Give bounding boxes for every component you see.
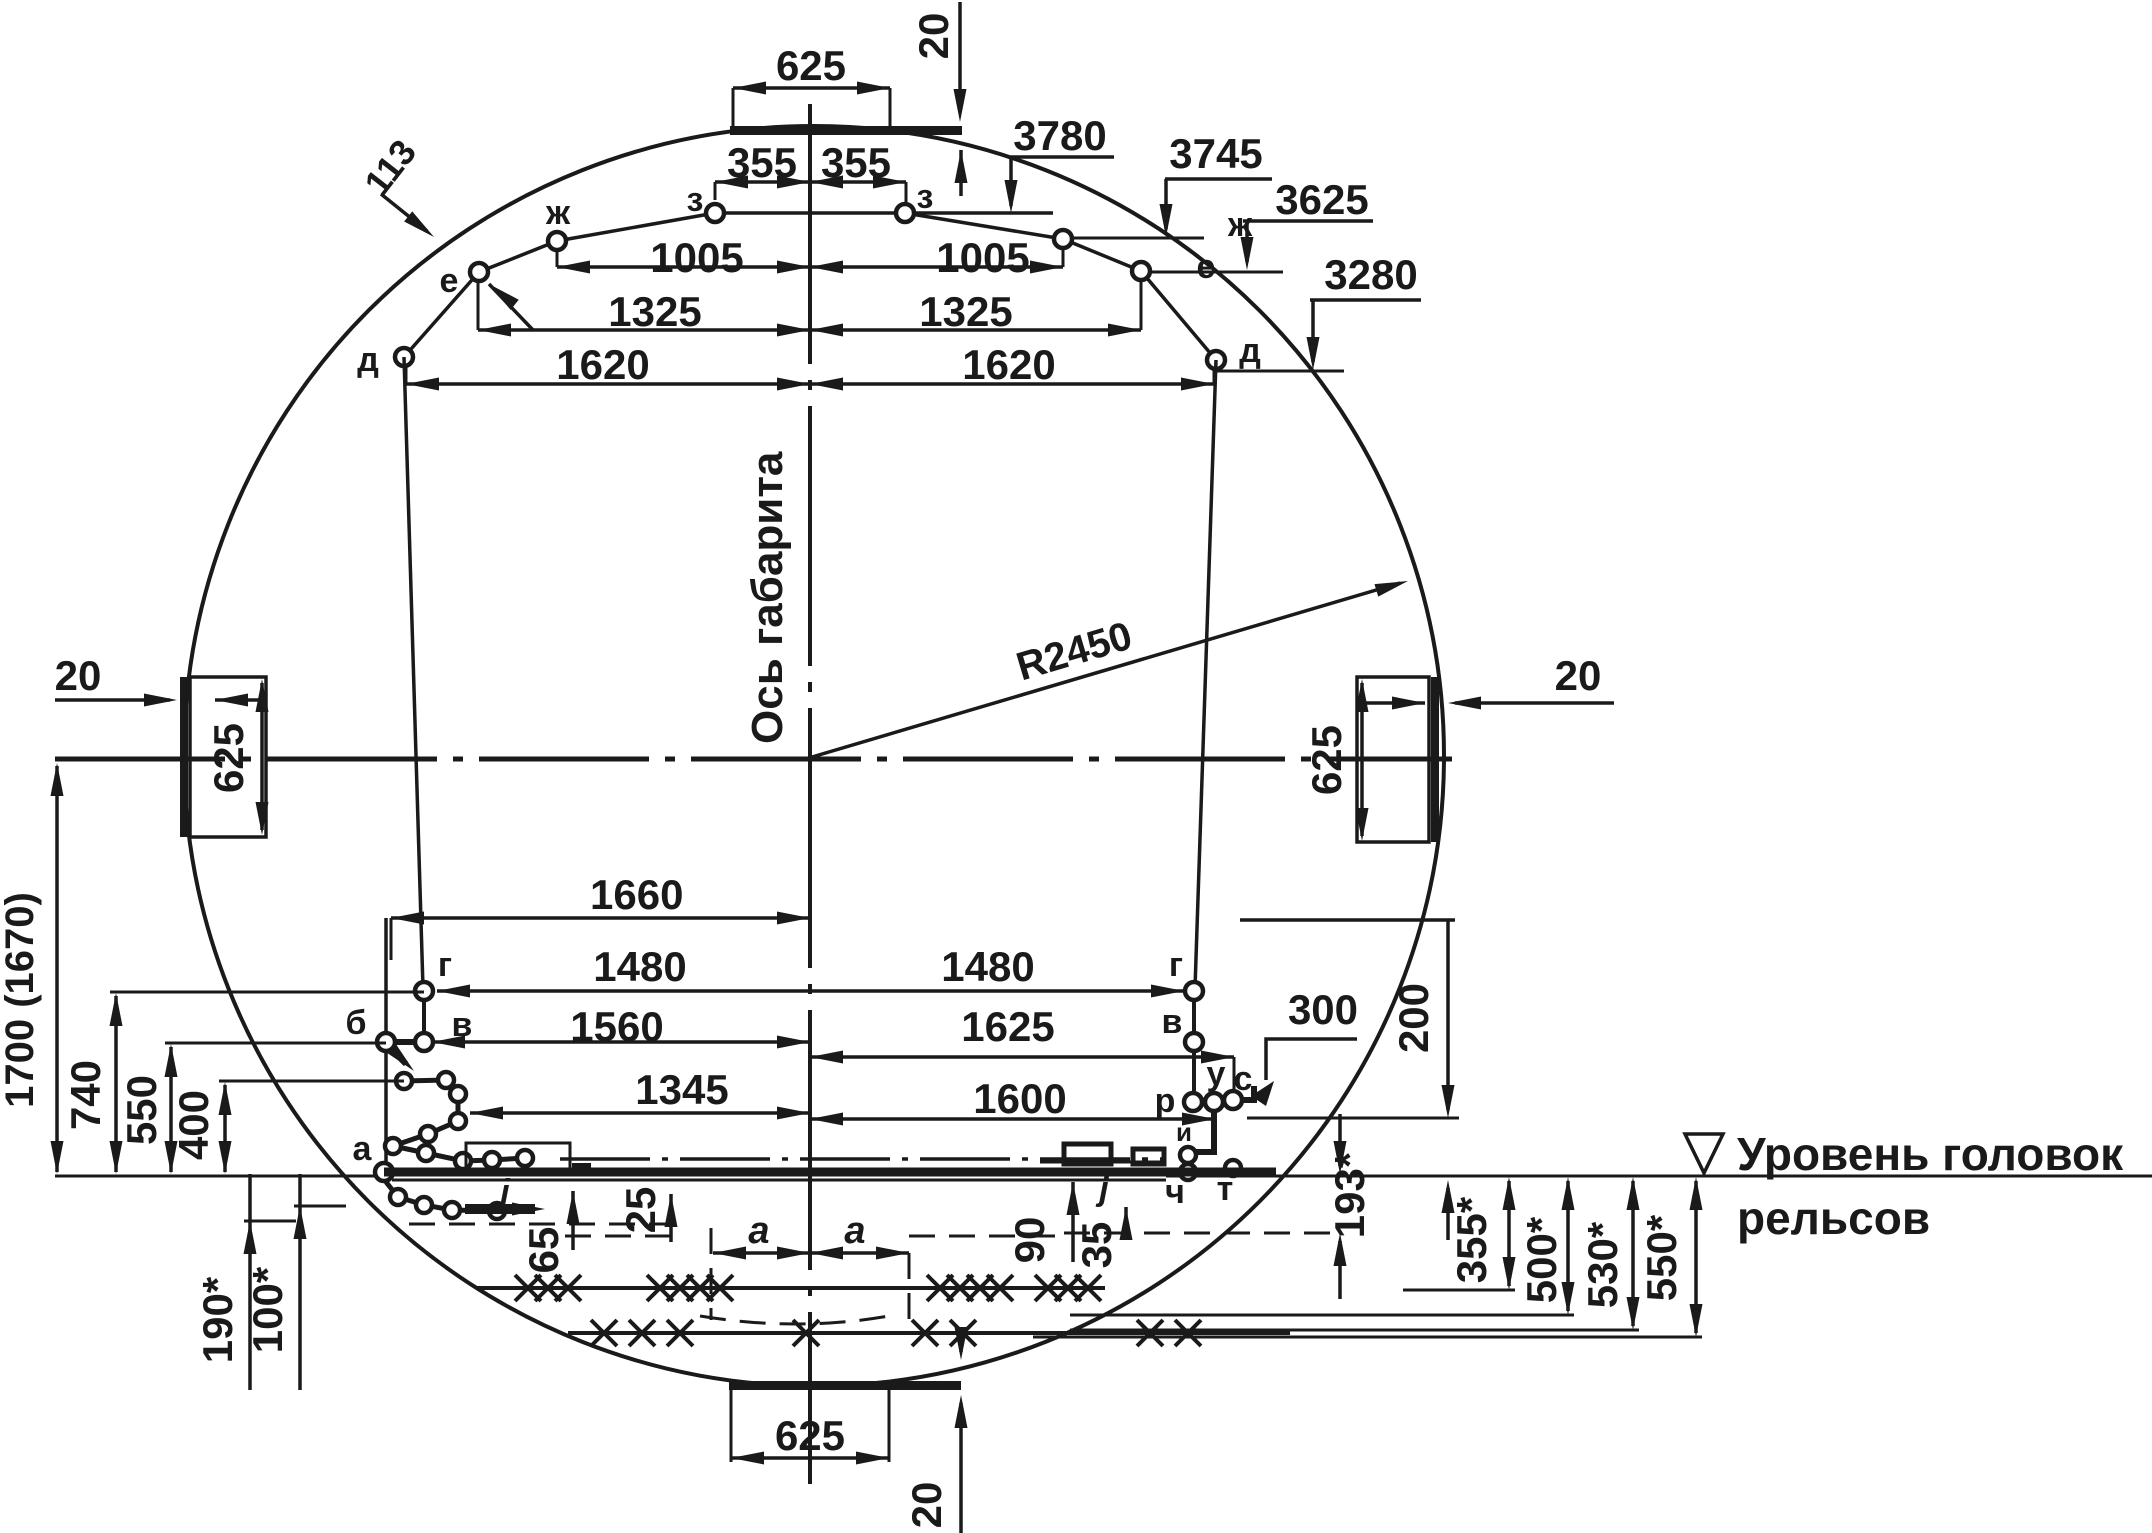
svg-text:3780: 3780 xyxy=(1013,112,1106,159)
svg-text:35: 35 xyxy=(1073,1222,1120,1269)
svg-text:1625: 1625 xyxy=(961,1003,1054,1050)
svg-text:б: б xyxy=(345,1004,366,1042)
svg-text:190*: 190* xyxy=(194,1276,241,1363)
svg-text:20: 20 xyxy=(910,13,957,60)
svg-text:3280: 3280 xyxy=(1324,251,1417,298)
svg-text:1480: 1480 xyxy=(593,943,686,990)
svg-text:300: 300 xyxy=(1288,986,1358,1033)
svg-text:200: 200 xyxy=(1390,983,1437,1053)
svg-text:1005: 1005 xyxy=(936,234,1029,281)
svg-text:1005: 1005 xyxy=(650,234,743,281)
svg-text:625: 625 xyxy=(205,723,252,793)
svg-text:г: г xyxy=(1169,946,1183,984)
svg-text:1560: 1560 xyxy=(570,1003,663,1050)
svg-text:193*: 193* xyxy=(1326,1151,1373,1238)
svg-text:25: 25 xyxy=(617,1187,664,1234)
svg-text:1325: 1325 xyxy=(608,288,701,335)
svg-text:и: и xyxy=(1176,1117,1192,1147)
svg-text:400: 400 xyxy=(170,1090,217,1160)
svg-text:550: 550 xyxy=(118,1075,165,1145)
svg-text:з: з xyxy=(917,178,934,216)
svg-text:500*: 500* xyxy=(1518,1216,1565,1303)
svg-text:а: а xyxy=(353,1130,373,1168)
svg-text:д: д xyxy=(1239,332,1261,370)
svg-text:3625: 3625 xyxy=(1275,176,1368,223)
svg-text:20: 20 xyxy=(55,652,102,699)
svg-text:20: 20 xyxy=(903,1482,950,1529)
svg-text:с: с xyxy=(1234,1060,1253,1098)
svg-text:625: 625 xyxy=(1303,725,1350,795)
svg-text:р: р xyxy=(1155,1082,1176,1120)
svg-text:530*: 530* xyxy=(1579,1221,1626,1308)
svg-text:у: у xyxy=(1207,1055,1226,1093)
svg-text:рельсов: рельсов xyxy=(1737,1192,1930,1244)
svg-text:1480: 1480 xyxy=(941,943,1034,990)
svg-text:625: 625 xyxy=(775,1412,845,1459)
svg-text:з: з xyxy=(687,181,704,219)
svg-text:65: 65 xyxy=(520,1227,567,1274)
svg-text:1620: 1620 xyxy=(556,341,649,388)
svg-text:е: е xyxy=(1197,248,1216,286)
svg-text:в: в xyxy=(1162,1003,1183,1041)
svg-text:Уровень головок: Уровень головок xyxy=(1737,1128,2124,1180)
svg-text:113: 113 xyxy=(356,132,424,203)
svg-text:355: 355 xyxy=(727,139,797,186)
svg-text:1700 (1670): 1700 (1670) xyxy=(0,892,42,1108)
svg-text:Ось габарита: Ось габарита xyxy=(743,451,792,744)
svg-text:625: 625 xyxy=(776,42,846,89)
svg-text:1600: 1600 xyxy=(973,1075,1066,1122)
svg-text:355: 355 xyxy=(821,139,891,186)
svg-text:1660: 1660 xyxy=(590,871,683,918)
svg-text:3745: 3745 xyxy=(1169,130,1262,177)
svg-text:740: 740 xyxy=(62,1060,109,1130)
svg-text:ч: ч xyxy=(1165,1173,1185,1211)
svg-text:a: a xyxy=(748,1210,769,1252)
svg-text:90: 90 xyxy=(1006,1217,1053,1264)
svg-text:е: е xyxy=(440,262,459,300)
svg-text:355*: 355* xyxy=(1448,1196,1495,1283)
svg-text:д: д xyxy=(357,341,379,379)
svg-text:1325: 1325 xyxy=(919,288,1012,335)
svg-text:1620: 1620 xyxy=(962,341,1055,388)
svg-text:550*: 550* xyxy=(1638,1214,1685,1301)
svg-text:г: г xyxy=(438,946,452,984)
svg-text:a: a xyxy=(844,1210,865,1252)
svg-text:1345: 1345 xyxy=(635,1066,728,1113)
svg-text:ж: ж xyxy=(545,194,571,232)
svg-text:20: 20 xyxy=(1555,652,1602,699)
svg-text:100*: 100* xyxy=(244,1266,291,1353)
